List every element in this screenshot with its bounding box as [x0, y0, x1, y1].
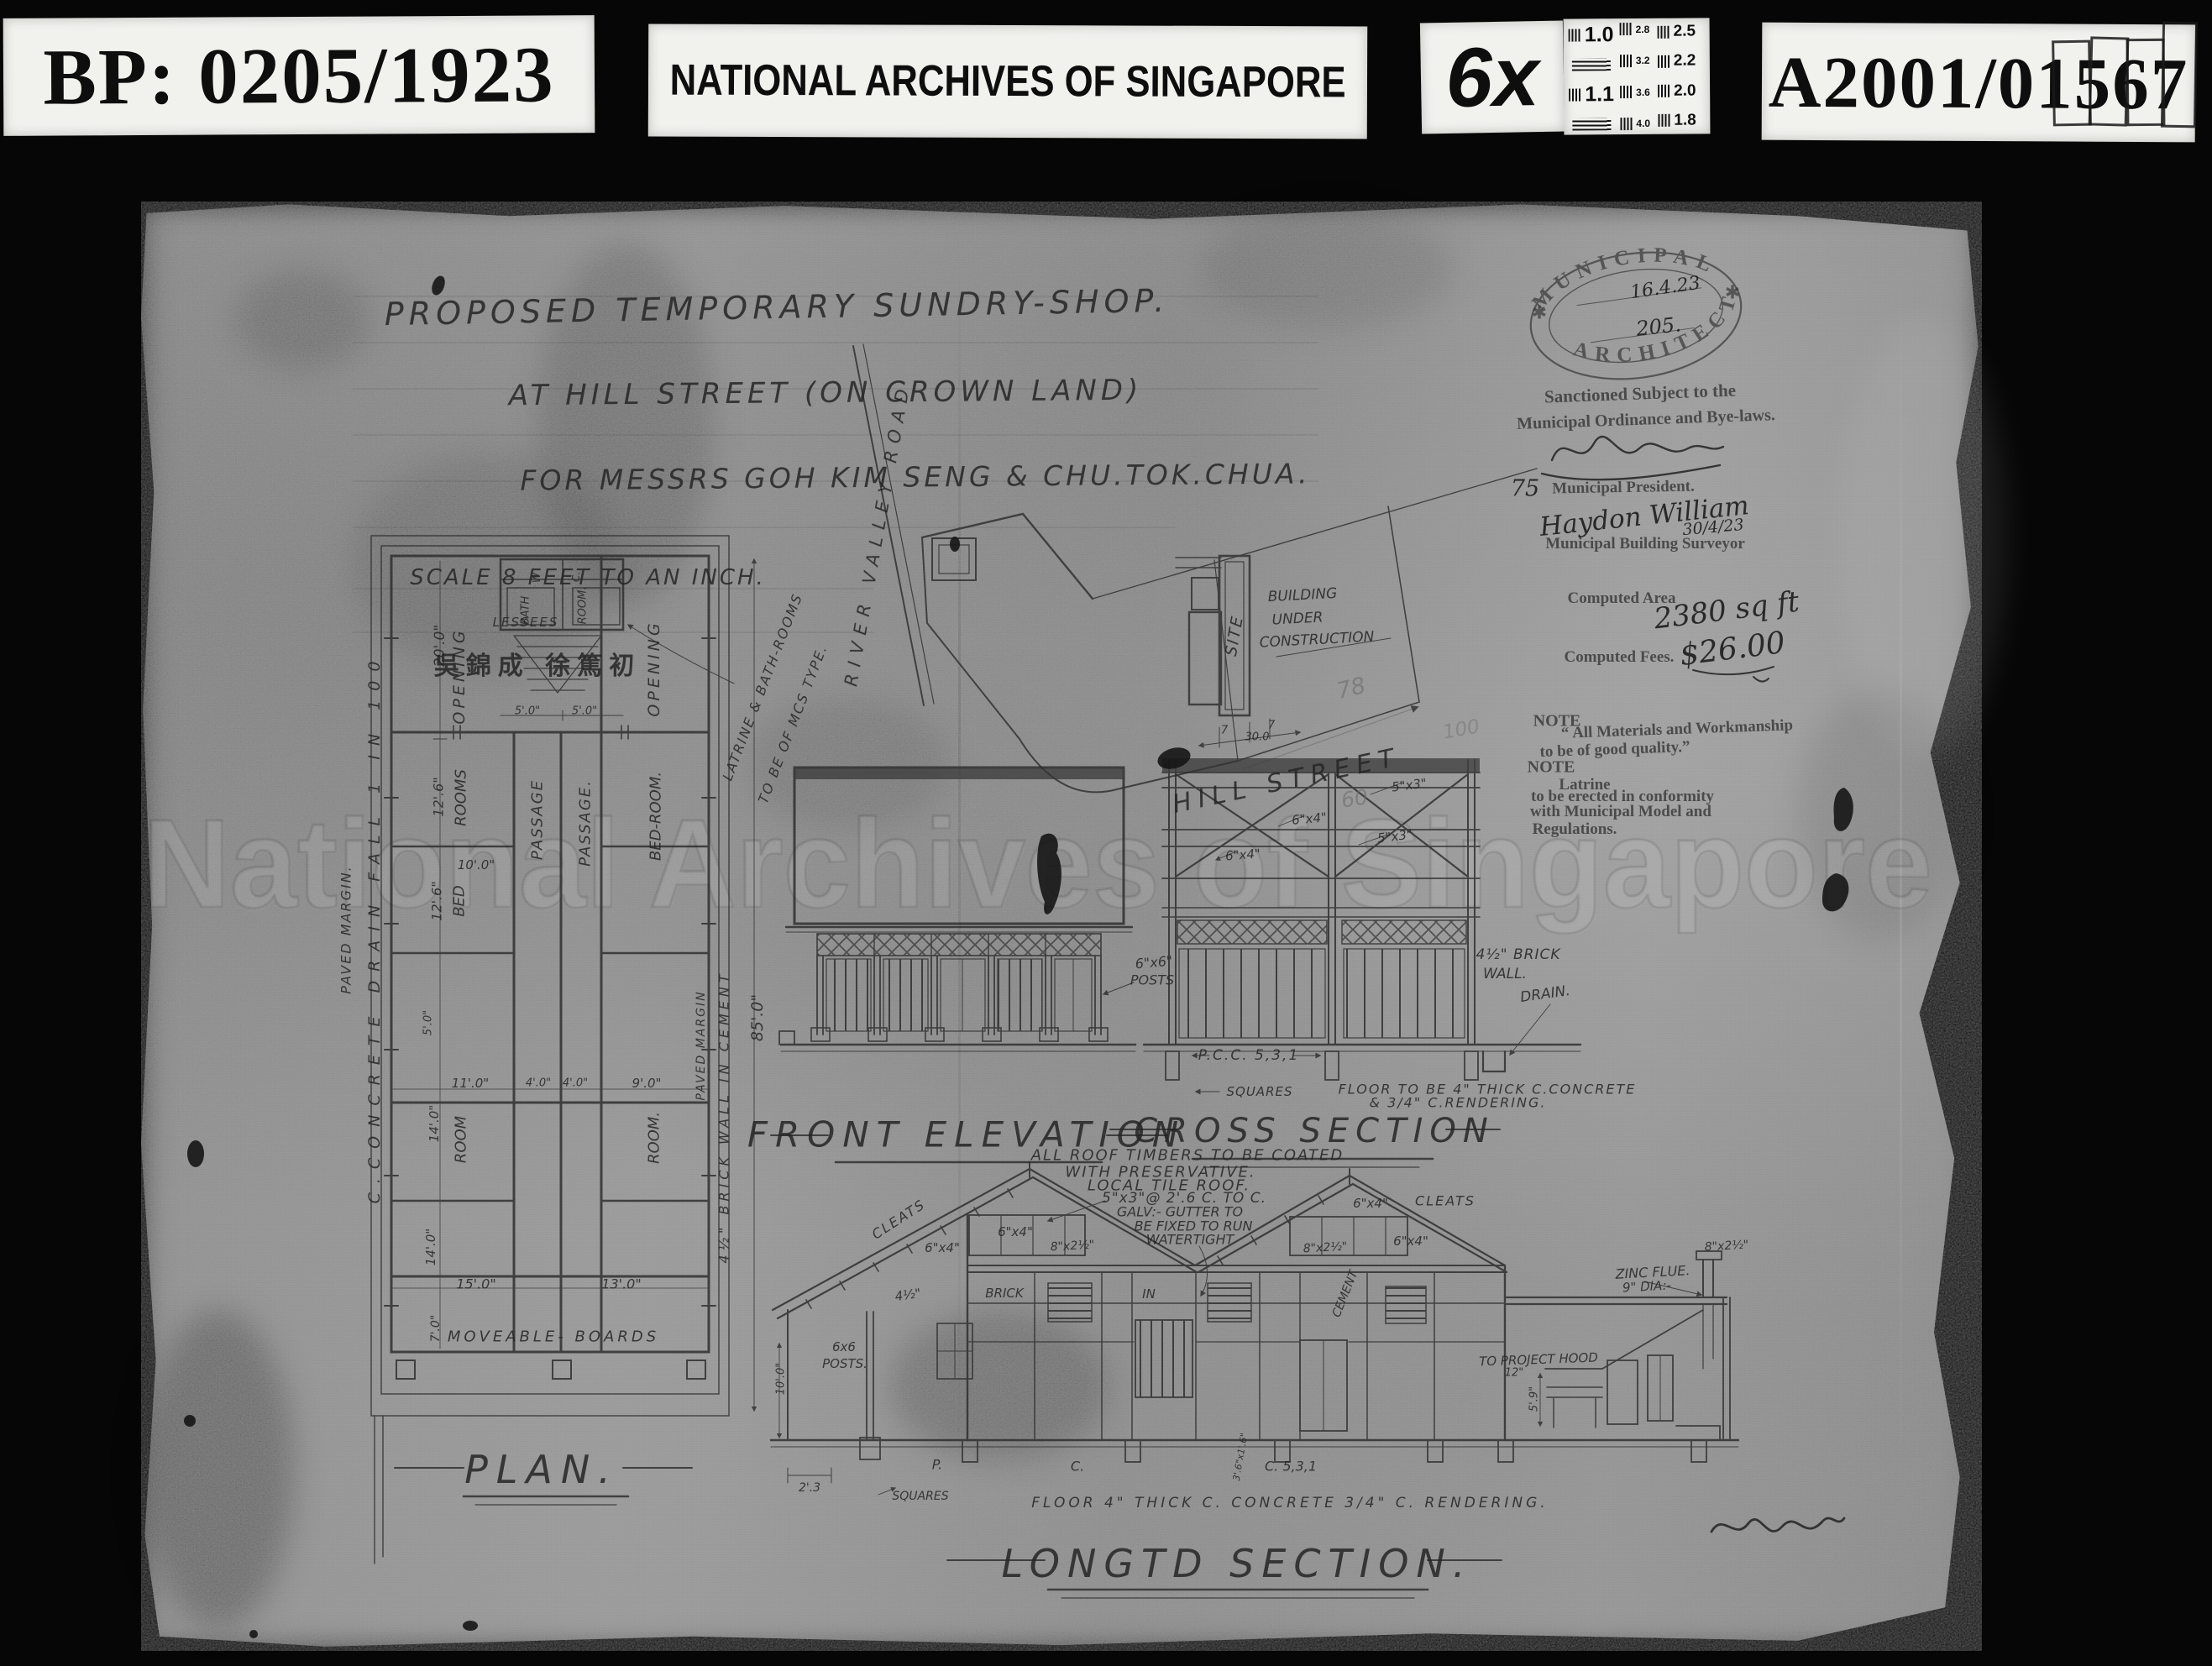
archive-name-text: NATIONAL ARCHIVES OF SINGAPORE — [669, 55, 1345, 108]
cal-value: 1.0 — [1585, 23, 1614, 47]
bp-number-text: BP: 0205/1923 — [43, 28, 555, 123]
cal-value: 2.0 — [1674, 81, 1696, 100]
computed-fees-label: Computed Fees. — [1565, 648, 1675, 667]
dim-label: 5'.0" — [515, 705, 540, 718]
cal-value: 1.1 — [1585, 82, 1614, 107]
dim-label: 13'.0" — [601, 1276, 641, 1292]
wall-note: BRICK — [985, 1286, 1023, 1301]
dim-label: 7'.0" — [429, 1315, 443, 1343]
archive-scan-page: BP: 0205/1923 NATIONAL ARCHIVES OF SINGA… — [0, 0, 2212, 1666]
dim-label: 14'.0" — [427, 1105, 442, 1142]
posts-note: 6x6 — [832, 1339, 856, 1354]
posts-note: 6"x6" — [1135, 953, 1173, 972]
dim-label: 11'.0" — [452, 1076, 489, 1091]
dim-label: 7 — [1221, 725, 1228, 737]
room-label: ROOM — [453, 1116, 470, 1163]
note-heading: NOTE — [1528, 758, 1575, 778]
brick-wall-note: 4½" BRICK WALL IN CEMENT — [716, 970, 732, 1263]
dim-label: 7 — [1268, 720, 1275, 732]
building-note: UNDER — [1271, 609, 1324, 628]
president-label: Municipal President. — [1552, 478, 1695, 499]
room-label: BED-ROOM. — [647, 772, 665, 861]
hand-drawn-box — [2089, 36, 2130, 126]
drawing-title-line3: FOR MESSRS GOH KIM SENG & CHU.TOK.CHUA. — [520, 457, 1310, 496]
timber-dim: 8"x2½" — [1050, 1239, 1094, 1255]
floor-note: & 3/4" C.RENDERING. — [1370, 1095, 1547, 1111]
cal-value: 2.2 — [1674, 52, 1696, 71]
drain-note: C.CONCRETE DRAIN FALL 1 IN 100 — [365, 652, 384, 1204]
hand-drawn-box — [2161, 22, 2198, 128]
dim-label: 85'.0" — [748, 994, 767, 1041]
dim-label: 60 — [1339, 784, 1370, 812]
room-label: BED — [451, 885, 469, 917]
pcc-note: P.C.C. 5,3,1 — [1198, 1047, 1300, 1064]
cleats-label: CLEATS — [1415, 1193, 1476, 1209]
drawing-title-line2: AT HILL STREET (ON CROWN LAND) — [509, 374, 1143, 413]
posts-note: POSTS — [1130, 972, 1174, 988]
dim-label: 2'.3 — [799, 1481, 820, 1495]
note-text: with Municipal Model and — [1530, 803, 1711, 821]
long-section-title: LONGTD SECTION. — [1002, 1541, 1473, 1586]
hand-drawn-box — [2126, 39, 2166, 126]
stamp-number: 205. — [1635, 312, 1682, 340]
stamp-star: ✱ — [1532, 303, 1547, 324]
note-text: Regulations. — [1533, 820, 1617, 839]
room-label: C. — [570, 572, 582, 582]
bp-number-label: BP: 0205/1923 — [3, 15, 595, 136]
room-label: ROOM. — [646, 1112, 663, 1164]
magnification-label: 6x — [1420, 21, 1565, 134]
zinc-flue-note: 9" DIA:- — [1622, 1277, 1671, 1295]
roof-note: WATERTIGHT — [1146, 1232, 1234, 1248]
dim-label: 30.0 — [1245, 731, 1270, 744]
room-label: ROOM. — [577, 587, 590, 625]
wall-note: IN — [1142, 1286, 1156, 1302]
dim-label: 5'.0" — [422, 1010, 435, 1035]
room-label: OPENING — [450, 627, 469, 724]
stamp-star: ✱ — [1725, 283, 1740, 304]
dim-label: 12'.6" — [429, 881, 445, 920]
cal-value: 3.6 — [1636, 86, 1650, 98]
plan-title: PLAN. — [464, 1447, 619, 1492]
paved-margin-label: PAVED MARGIN — [695, 990, 708, 1100]
magnification-text: 6x — [1444, 29, 1539, 127]
dim-label: 5'.0" — [572, 705, 597, 718]
material-key: P. — [932, 1457, 943, 1473]
calibration-col-mid: 2.8 3.2 3.6 4.0 — [1620, 23, 1653, 130]
timber-dim: 6"x4" — [1225, 846, 1261, 864]
brick-wall-note: 4½" BRICK — [1476, 946, 1560, 963]
roof-note: ALL ROOF TIMBERS TO BE COATED — [1031, 1147, 1344, 1165]
dim-label: 10'.0" — [458, 857, 495, 872]
timber-dim: 6"x4" — [1291, 809, 1327, 828]
timber-dim: 6"x4" — [998, 1224, 1033, 1239]
calibration-col-left: 1.0 1.1 — [1569, 23, 1615, 130]
cal-value: 3.2 — [1636, 55, 1650, 66]
room-label: OPENING — [645, 620, 663, 716]
archive-name-label: NATIONAL ARCHIVES OF SINGAPORE — [648, 24, 1367, 139]
squares-note: SQUARES — [1227, 1084, 1293, 1099]
floor-note: FLOOR 4" THICK C. CONCRETE 3/4" C. RENDE… — [1031, 1495, 1548, 1511]
material-key: C. 5,3,1 — [1265, 1459, 1317, 1475]
timber-dim: 8"x2½" — [1303, 1240, 1347, 1256]
dim-label: 12'.6" — [431, 777, 447, 816]
surveyor-label: Municipal Building Surveyor — [1545, 535, 1745, 553]
room-label: ROOMS — [453, 769, 470, 826]
dim-label: 4'.0" — [526, 1077, 551, 1090]
dim-label: 5'.9" — [1528, 1386, 1541, 1412]
dim-label: 9'.0" — [632, 1076, 662, 1091]
paved-margin-label: PAVED MARGIN. — [338, 865, 354, 994]
material-key: C. — [1071, 1459, 1084, 1475]
room-label: PASSAGE. — [577, 779, 595, 867]
timber-dim: 8"x2½" — [1704, 1239, 1748, 1255]
room-label: BATH — [520, 596, 532, 626]
timber-dim: 6"x4" — [1353, 1196, 1388, 1211]
calibration-col-right: 2.5 2.2 2.0 1.8 — [1658, 22, 1706, 129]
calibration-target: 1.0 1.1 2.8 3.2 3.6 4.0 2.5 2.2 2.0 1.8 — [1564, 18, 1711, 134]
posts-note: POSTS. — [822, 1356, 868, 1371]
hand-drawn-box — [2052, 40, 2092, 127]
brick-wall-note: WALL. — [1483, 966, 1527, 982]
timber-dim: 6"x4" — [1393, 1234, 1428, 1249]
dim-label: 14'.0" — [423, 1229, 438, 1265]
dim-label: 10'.0" — [775, 1363, 788, 1396]
timber-dim: 6"x4" — [925, 1240, 960, 1255]
room-label: W — [531, 573, 543, 583]
cal-value: 2.5 — [1674, 23, 1696, 41]
cal-value: 1.8 — [1674, 111, 1696, 129]
room-label: PASSAGE — [529, 779, 547, 860]
ref-number: 75 — [1511, 476, 1539, 502]
hood-note: 12" — [1505, 1367, 1524, 1380]
cross-section-title: CROSS SECTION — [1134, 1112, 1495, 1150]
cal-value: 4.0 — [1636, 118, 1650, 129]
dim-label: 15'.0" — [456, 1276, 495, 1292]
dim-label: 4'.0" — [563, 1077, 588, 1090]
squares-note: SQUARES — [892, 1490, 948, 1503]
moveable-boards-label: MOVEABLE- BOARDS — [448, 1328, 659, 1346]
cal-value: 2.8 — [1636, 23, 1650, 34]
dim-label: 20'.0" — [432, 625, 448, 667]
